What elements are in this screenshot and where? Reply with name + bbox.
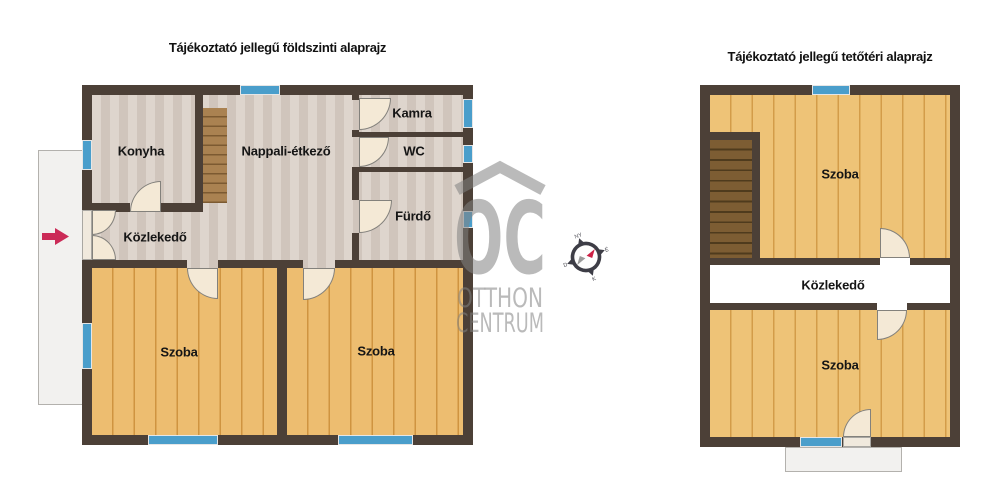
- attic-exit-door-gap: [843, 437, 871, 447]
- compass-label-west: NY: [574, 232, 584, 240]
- room-label-szoba-top: Szoba: [821, 167, 858, 182]
- room-label-szoba-bottom: Szoba: [821, 358, 858, 373]
- logo-monogram: OC: [454, 180, 546, 297]
- window: [82, 140, 92, 170]
- wall: [710, 258, 880, 265]
- wall: [352, 95, 359, 100]
- wall: [907, 303, 950, 310]
- entrance-door-gap: [82, 210, 92, 260]
- window: [812, 85, 850, 95]
- floorplan-page: Tájékoztató jellegű földszinti alaprajz …: [0, 0, 1000, 500]
- wall: [710, 303, 877, 310]
- room-label-kozlekedo-attic: Közlekedő: [801, 278, 864, 293]
- ground-floor-terrace: [38, 150, 85, 405]
- wall: [335, 260, 463, 268]
- room-label-szoba-right: Szoba: [357, 344, 394, 359]
- wall: [700, 85, 710, 447]
- wall: [910, 258, 950, 265]
- room-label-kamra: Kamra: [392, 106, 431, 121]
- attic-floor-plan: Szoba Közlekedő Szoba: [700, 85, 960, 447]
- attic-terrace: [785, 447, 902, 472]
- compass-icon: É K D NY: [560, 231, 612, 283]
- wall: [92, 260, 187, 268]
- entrance-arrow-icon: [42, 227, 70, 246]
- ground-floor-plan: Konyha Nappali-étkező Kamra WC Fürdő Köz…: [82, 85, 473, 445]
- wall: [82, 85, 92, 445]
- otthon-centrum-logo: OC OTTHON CENTRUM: [445, 158, 555, 338]
- wall: [352, 167, 359, 200]
- wall: [950, 85, 960, 447]
- window: [240, 85, 280, 95]
- compass-ring: [569, 240, 604, 275]
- entrance-arrow-shaft: [42, 233, 56, 240]
- window: [800, 437, 842, 447]
- compass-label-east: K: [591, 276, 597, 283]
- room-label-nappali: Nappali-étkező: [242, 144, 331, 159]
- entrance-arrow-head: [55, 228, 69, 245]
- wall: [161, 203, 203, 212]
- wall: [82, 435, 473, 445]
- window: [148, 435, 218, 445]
- wall: [710, 132, 760, 140]
- floor-szoba-bottom: [710, 310, 950, 437]
- wall: [218, 260, 303, 268]
- attic-floor-title: Tájékoztató jellegű tetőtéri alaprajz: [700, 49, 960, 64]
- room-label-furdo: Fürdő: [395, 209, 431, 224]
- window: [463, 99, 473, 128]
- ground-floor-title: Tájékoztató jellegű földszinti alaprajz: [82, 40, 473, 55]
- compass-label-north: É: [604, 246, 610, 254]
- room-label-wc: WC: [403, 144, 424, 159]
- logo-name-line2: CENTRUM: [456, 308, 544, 338]
- room-label-konyha: Konyha: [118, 144, 164, 159]
- wall: [277, 268, 287, 435]
- wall: [352, 130, 359, 137]
- compass-label-south: D: [563, 262, 569, 269]
- wall: [195, 95, 203, 212]
- staircase-ground: [203, 108, 227, 203]
- room-label-szoba-left: Szoba: [160, 345, 197, 360]
- window: [82, 323, 92, 369]
- staircase-attic: [710, 140, 752, 265]
- window: [338, 435, 413, 445]
- wall: [752, 140, 760, 265]
- room-label-kozlekedo: Közlekedő: [123, 230, 186, 245]
